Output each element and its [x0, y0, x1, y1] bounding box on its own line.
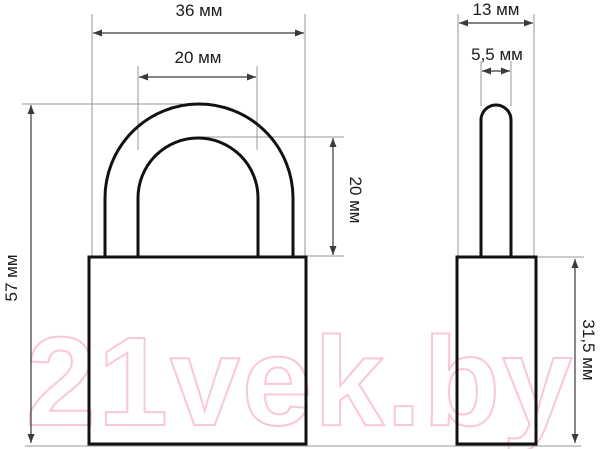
dim-label-side-body-height: 31,5 мм	[579, 319, 598, 380]
technical-drawing-canvas: 21vek.by 36 мм 20 мм 57 мм	[0, 0, 600, 449]
dim-label-body-depth: 13 мм	[472, 0, 519, 19]
dim-label-body-width: 36 мм	[175, 1, 222, 20]
shackle-outer-outline	[105, 104, 293, 258]
dim-label-total-height: 57 мм	[2, 254, 21, 301]
dim-label-shackle-height: 20 мм	[346, 176, 365, 223]
watermark: 21vek.by	[26, 311, 574, 449]
dim-label-shackle-diameter: 5,5 мм	[471, 45, 523, 64]
watermark-text: 21vek.by	[26, 311, 574, 449]
shackle-inner-outline	[138, 138, 258, 258]
dim-label-shackle-inner-width: 20 мм	[174, 48, 221, 67]
shackle-side-outline	[481, 105, 511, 258]
padlock-dimension-drawing: 21vek.by 36 мм 20 мм 57 мм	[0, 0, 600, 449]
